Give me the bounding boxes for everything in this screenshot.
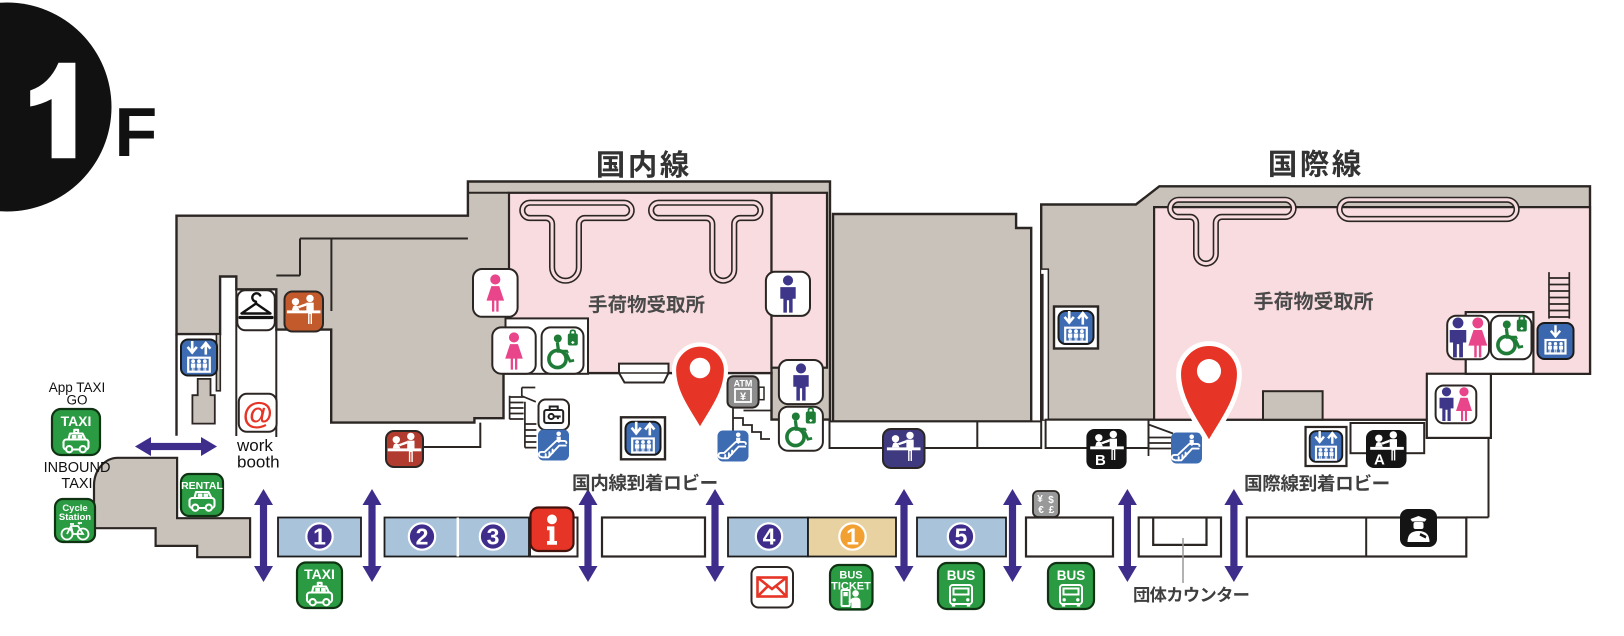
svg-text:GO: GO (66, 393, 87, 408)
svg-text:TAXI: TAXI (61, 476, 92, 492)
svg-text:5: 5 (955, 524, 968, 550)
svg-text:RENTAL: RENTAL (181, 480, 223, 492)
svg-text:£: £ (1049, 505, 1055, 516)
svg-text:4: 4 (763, 524, 776, 550)
svg-text:1: 1 (846, 524, 859, 550)
svg-text:¥: ¥ (740, 391, 747, 403)
svg-text:2: 2 (416, 524, 429, 550)
svg-text:A: A (1374, 452, 1385, 469)
svg-text:€: € (1038, 505, 1044, 516)
svg-text:TAXI: TAXI (61, 413, 92, 429)
svg-text:Station: Station (59, 512, 91, 523)
svg-text:1: 1 (313, 524, 326, 550)
svg-text:BUS: BUS (1057, 568, 1086, 583)
svg-text:TICKET: TICKET (831, 581, 871, 593)
svg-text:@: @ (243, 396, 273, 431)
svg-text:3: 3 (487, 524, 500, 550)
svg-text:TAXI: TAXI (304, 566, 335, 582)
svg-text:ATM: ATM (734, 379, 753, 389)
svg-text:¥: ¥ (1037, 494, 1043, 505)
svg-text:BUS: BUS (947, 568, 976, 583)
svg-text:F: F (115, 93, 158, 171)
svg-text:booth: booth (237, 453, 280, 472)
svg-text:B: B (1095, 452, 1106, 469)
svg-text:INBOUND: INBOUND (44, 460, 111, 476)
